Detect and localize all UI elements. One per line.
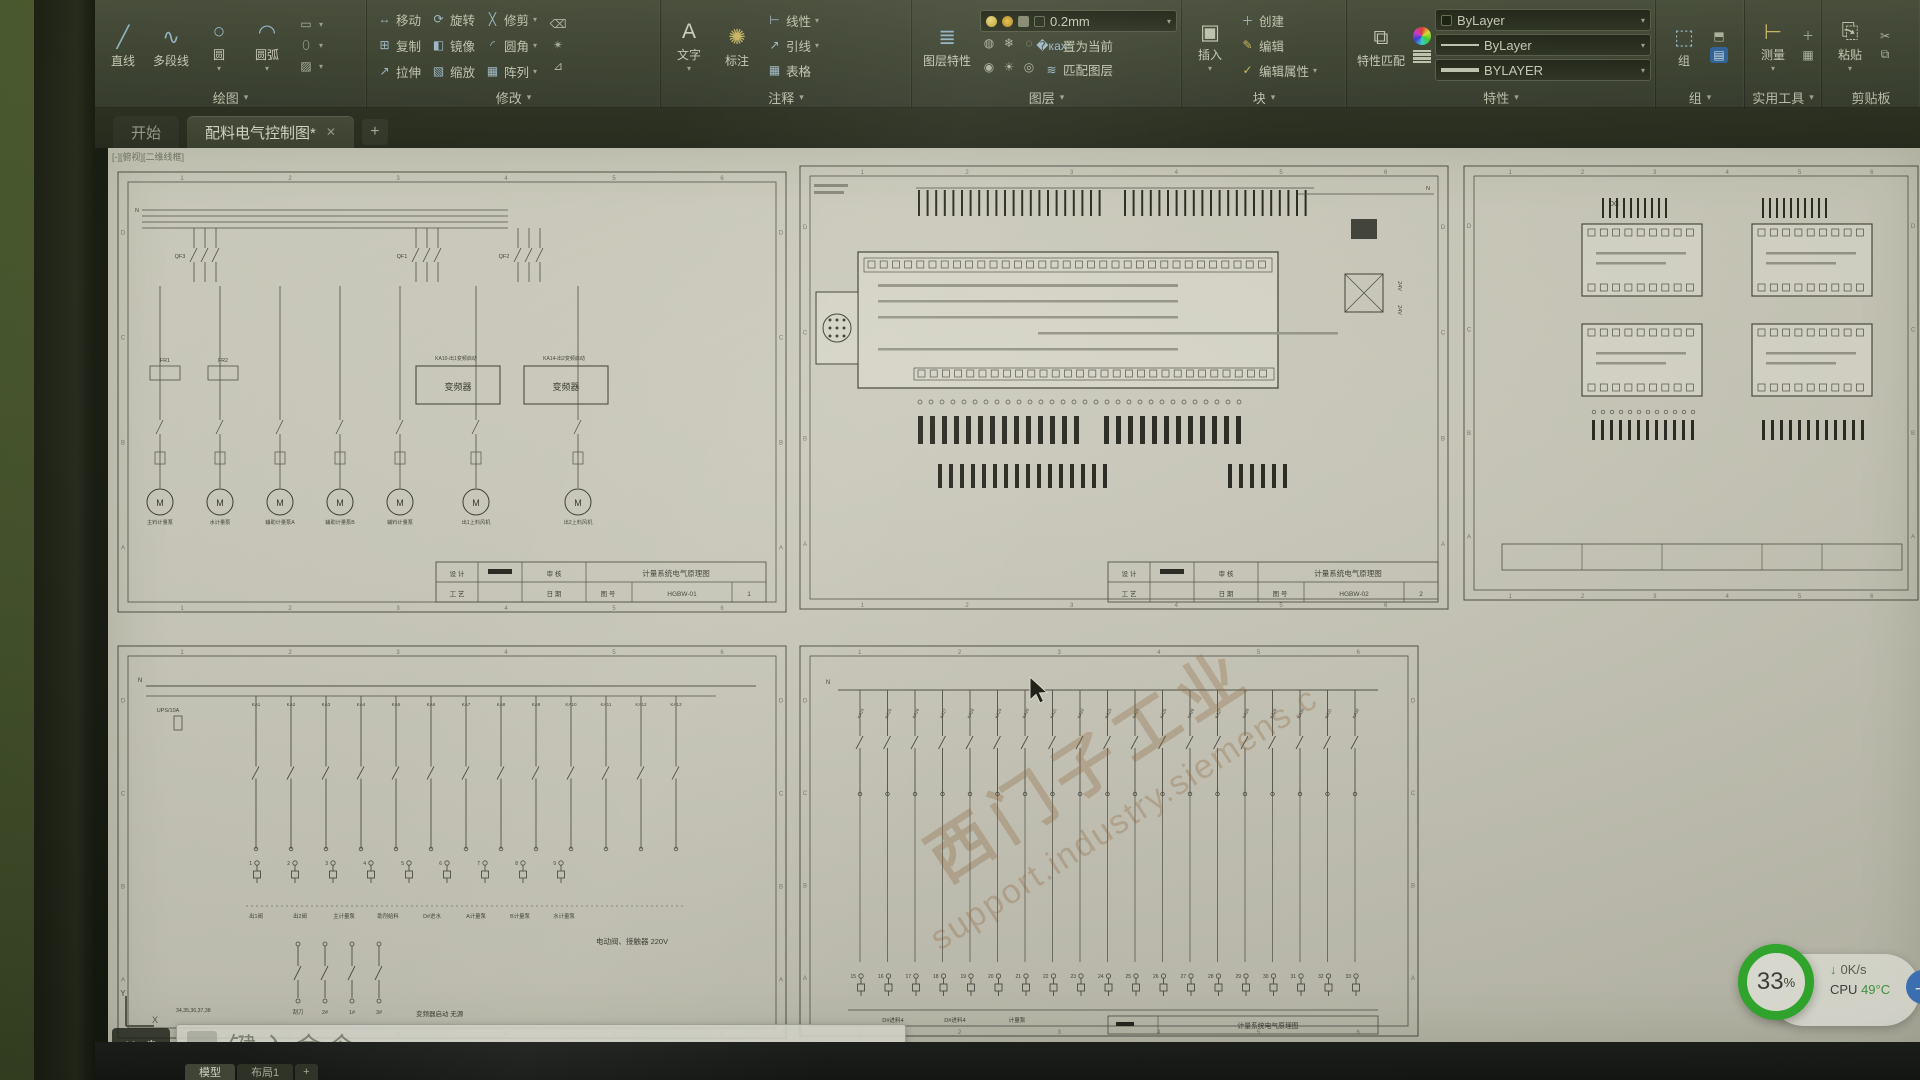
svg-text:KA29: KA29 bbox=[1269, 707, 1278, 719]
dimension-button[interactable]: ✺ 标注 bbox=[715, 21, 759, 70]
sheet-io-modules: 112233445566DDCCBBAADC bbox=[1462, 164, 1920, 602]
layers-icon: ≣ bbox=[932, 23, 962, 53]
svg-text:27: 27 bbox=[1180, 974, 1186, 980]
photo-of-autocad-screen: ╱ 直线 ∿ 多段线 ○ 圆▾ ◠ 圆弧▾ ▭▾ ⬯▾ ▨▾ 绘图 bbox=[0, 0, 1920, 1080]
sheet-relay-control-1: 112233445566DDCCBBAANUPS/10AKA1KA2KA3KA4… bbox=[116, 644, 788, 1040]
linetype-dropdown[interactable]: ByLayer ▾ bbox=[1435, 34, 1651, 56]
svg-text:8: 8 bbox=[515, 861, 518, 867]
svg-text:C: C bbox=[1911, 327, 1916, 333]
memory-percent-ring[interactable]: 33% bbox=[1738, 944, 1814, 1020]
svg-text:B: B bbox=[1441, 436, 1445, 442]
svg-text:设 计: 设 计 bbox=[450, 569, 465, 578]
svg-text:D#进料4: D#进料4 bbox=[882, 1016, 903, 1024]
svg-text:30: 30 bbox=[1263, 974, 1269, 980]
svg-text:KA31: KA31 bbox=[1324, 707, 1333, 719]
modify-panel-label[interactable]: 修改▾ bbox=[367, 86, 660, 108]
svg-text:6: 6 bbox=[720, 606, 724, 612]
svg-text:N: N bbox=[138, 678, 142, 684]
svg-text:B: B bbox=[779, 441, 783, 447]
color-wheel-icon[interactable] bbox=[1413, 27, 1431, 45]
svg-text:29: 29 bbox=[1235, 974, 1241, 980]
layer-dropdown[interactable]: 0.2mm ▾ bbox=[980, 10, 1177, 32]
svg-text:X: X bbox=[152, 1015, 158, 1025]
chevron-down-icon: ▾ bbox=[1641, 16, 1645, 25]
layer-thaw-all-icon[interactable]: ☀ bbox=[1000, 59, 1018, 75]
svg-text:7: 7 bbox=[477, 861, 480, 867]
fillet-button[interactable]: ◜圆角▾ bbox=[481, 35, 541, 56]
svg-text:C: C bbox=[803, 331, 808, 337]
sheet-plc-wiring: 112233445566DDCCBBAAN24V24V设 计工 艺审 核日 期计… bbox=[798, 164, 1450, 611]
svg-text:辅助计量泵A: 辅助计量泵A bbox=[265, 518, 295, 526]
explode-icon: ✴ bbox=[549, 37, 567, 53]
svg-text:B计量泵: B计量泵 bbox=[510, 912, 530, 920]
svg-text:主料计量泵: 主料计量泵 bbox=[147, 518, 173, 526]
move-icon: ↔ bbox=[377, 12, 392, 27]
svg-text:变频器启动 无源: 变频器启动 无源 bbox=[416, 1009, 464, 1018]
svg-text:4: 4 bbox=[504, 176, 508, 182]
circle-icon: ○ bbox=[204, 17, 234, 47]
svg-text:KA2: KA2 bbox=[287, 702, 296, 707]
edit-block-icon: ✎ bbox=[1240, 38, 1255, 53]
hatch-icon: ▨ bbox=[297, 58, 315, 74]
svg-text:1#: 1# bbox=[349, 1010, 355, 1016]
svg-text:主计量泵: 主计量泵 bbox=[333, 912, 355, 920]
svg-text:D: D bbox=[779, 699, 784, 705]
block-panel-label[interactable]: 块▾ bbox=[1182, 86, 1346, 108]
svg-text:刮刀: 刮刀 bbox=[293, 1008, 304, 1016]
fillet-icon: ◜ bbox=[485, 38, 500, 53]
trim-button[interactable]: ╳修剪▾ bbox=[481, 9, 541, 30]
svg-text:A: A bbox=[121, 978, 125, 984]
svg-text:B: B bbox=[1911, 431, 1915, 437]
tab-start[interactable]: 开始 bbox=[113, 116, 179, 148]
svg-text:2: 2 bbox=[965, 170, 969, 176]
svg-text:变频器: 变频器 bbox=[552, 381, 579, 392]
arc-button[interactable]: ◠ 圆弧▾ bbox=[245, 15, 289, 75]
ribbon-panel-draw: ╱ 直线 ∿ 多段线 ○ 圆▾ ◠ 圆弧▾ ▭▾ ⬯▾ ▨▾ 绘图 bbox=[95, 0, 367, 108]
layers-panel-label[interactable]: 图层▾ bbox=[912, 86, 1181, 108]
lineweight-dropdown[interactable]: BYLAYER ▾ bbox=[1435, 59, 1651, 81]
cut-icon[interactable]: ✂ bbox=[1876, 28, 1894, 44]
chevron-down-icon: ▾ bbox=[1167, 17, 1171, 26]
svg-text:KA1: KA1 bbox=[252, 702, 261, 707]
svg-text:5: 5 bbox=[612, 606, 616, 612]
ribbon-panel-layers: ≣ 图层特性 0.2mm ▾ ◍ ❄ ◌ �ка bbox=[912, 0, 1182, 108]
match-properties-icon: ⧉ bbox=[1366, 23, 1396, 53]
linear-dimension-icon: ⊢ bbox=[767, 13, 782, 28]
svg-text:A: A bbox=[1467, 534, 1471, 540]
svg-text:辅料计量泵: 辅料计量泵 bbox=[387, 518, 413, 526]
svg-text:KA21: KA21 bbox=[1049, 707, 1058, 719]
svg-text:HGBW-01: HGBW-01 bbox=[667, 591, 697, 598]
svg-text:C: C bbox=[121, 792, 126, 798]
svg-text:HGBW-02: HGBW-02 bbox=[1339, 591, 1369, 598]
group-edit-icon[interactable]: ▤ bbox=[1710, 47, 1728, 63]
svg-text:A: A bbox=[803, 542, 807, 548]
svg-text:M: M bbox=[156, 498, 164, 508]
svg-text:D: D bbox=[1467, 224, 1472, 230]
svg-text:5: 5 bbox=[1798, 170, 1802, 176]
svg-text:24V: 24V bbox=[1396, 305, 1402, 315]
svg-text:25: 25 bbox=[1125, 974, 1131, 980]
svg-text:D: D bbox=[779, 231, 784, 237]
edit-attributes-icon: ✓ bbox=[1240, 63, 1255, 78]
svg-text:5: 5 bbox=[1257, 650, 1261, 656]
edit-attributes-button[interactable]: ✓编辑属性▾ bbox=[1236, 60, 1321, 81]
copy-button[interactable]: ⊞复制 bbox=[373, 35, 425, 56]
ribbon: ╱ 直线 ∿ 多段线 ○ 圆▾ ◠ 圆弧▾ ▭▾ ⬯▾ ▨▾ 绘图 bbox=[95, 0, 1920, 108]
viewport-controls[interactable]: [-][俯视][二维线框] bbox=[112, 150, 184, 163]
rotate-icon: ⟳ bbox=[431, 12, 446, 27]
svg-text:18: 18 bbox=[933, 974, 939, 980]
tab-drawing-active[interactable]: 配料电气控制图* ✕ bbox=[187, 116, 354, 148]
ungroup-icon[interactable]: ⬒ bbox=[1710, 28, 1728, 44]
svg-text:设 计: 设 计 bbox=[1122, 569, 1137, 578]
svg-text:B: B bbox=[1467, 431, 1471, 437]
create-block-icon: ＋ bbox=[1240, 13, 1255, 28]
linear-dimension-button[interactable]: ⊢线性▾ bbox=[763, 10, 823, 31]
linetype-sample bbox=[1441, 44, 1479, 46]
svg-text:助剂给料: 助剂给料 bbox=[377, 912, 399, 920]
quick-calc-icon[interactable]: ▦ bbox=[1799, 47, 1817, 63]
svg-text:C: C bbox=[803, 791, 808, 797]
ribbon-panel-utilities: ⊢ 测量▾ ＋ ▦ 实用工具▾ bbox=[1745, 0, 1822, 108]
svg-text:KA32: KA32 bbox=[1351, 707, 1360, 719]
svg-text:出1上料风机: 出1上料风机 bbox=[462, 518, 492, 526]
svg-text:KA22: KA22 bbox=[1076, 707, 1085, 719]
sheet-power-circuit: 112233445566DDCCBBAANQF3QF1QF2FR1FR2KA10… bbox=[116, 170, 788, 614]
svg-text:3: 3 bbox=[396, 650, 400, 656]
layout-tab-add[interactable]: + bbox=[295, 1064, 317, 1080]
svg-text:M: M bbox=[336, 498, 344, 508]
svg-text:4: 4 bbox=[504, 650, 508, 656]
svg-text:C: C bbox=[121, 336, 126, 342]
utilities-panel-label[interactable]: 实用工具▾ bbox=[1745, 86, 1821, 108]
svg-text:计量系统电气原理图: 计量系统电气原理图 bbox=[642, 568, 710, 578]
svg-text:3: 3 bbox=[396, 606, 400, 612]
svg-text:KA30: KA30 bbox=[1296, 707, 1305, 719]
measure-icon: ⊢ bbox=[1758, 17, 1788, 47]
svg-text:1: 1 bbox=[180, 650, 184, 656]
layer-on-icon bbox=[986, 16, 997, 27]
ribbon-panel-block: ▣ 插入▾ ＋创建 ✎编辑 ✓编辑属性▾ 块▾ bbox=[1182, 0, 1347, 108]
svg-text:B: B bbox=[121, 885, 125, 891]
svg-text:KA24: KA24 bbox=[1131, 707, 1140, 719]
svg-text:KA20: KA20 bbox=[1021, 707, 1030, 719]
svg-text:C: C bbox=[1467, 327, 1472, 333]
svg-text:24: 24 bbox=[1098, 974, 1104, 980]
svg-text:4: 4 bbox=[1725, 170, 1729, 176]
rectangle-icon: ▭ bbox=[297, 16, 315, 32]
svg-text:D: D bbox=[1411, 698, 1416, 704]
arc-icon: ◠ bbox=[252, 17, 282, 47]
ellipse-tool-button[interactable]: ⬯▾ bbox=[293, 36, 327, 54]
svg-text:1: 1 bbox=[249, 861, 252, 867]
line-icon: ╱ bbox=[108, 23, 138, 53]
svg-text:计量系统电气原理图: 计量系统电气原理图 bbox=[1237, 1021, 1298, 1030]
svg-text:34,35,36,37,38: 34,35,36,37,38 bbox=[176, 1008, 211, 1014]
text-button[interactable]: A 文字▾ bbox=[667, 15, 711, 75]
polyline-icon: ∿ bbox=[156, 23, 186, 53]
system-monitor-widget[interactable]: ↓0K/s CPU 49°C 33% ＋ bbox=[1738, 944, 1920, 1036]
lineweight-list-icon[interactable] bbox=[1413, 50, 1431, 64]
stretch-button[interactable]: ↗拉伸 bbox=[373, 61, 425, 82]
svg-text:C: C bbox=[779, 336, 784, 342]
svg-text:变频器: 变频器 bbox=[444, 381, 471, 392]
group-panel-label[interactable]: 组▾ bbox=[1656, 86, 1744, 108]
svg-text:D: D bbox=[803, 698, 808, 704]
svg-text:3#: 3# bbox=[376, 1010, 382, 1016]
svg-text:Y: Y bbox=[120, 990, 126, 998]
svg-text:21: 21 bbox=[1015, 974, 1021, 980]
svg-text:水计量泵: 水计量泵 bbox=[210, 518, 231, 526]
svg-text:1: 1 bbox=[861, 170, 865, 176]
monitor-bezel bbox=[34, 0, 95, 1080]
svg-text:6: 6 bbox=[720, 650, 724, 656]
svg-text:B: B bbox=[779, 885, 783, 891]
svg-text:2: 2 bbox=[1581, 170, 1585, 176]
table-icon: ▦ bbox=[767, 63, 782, 78]
svg-text:22: 22 bbox=[1043, 974, 1049, 980]
svg-text:A: A bbox=[779, 546, 783, 552]
file-tab-bar: 开始 配料电气控制图* ✕ + bbox=[95, 108, 1920, 148]
svg-text:31: 31 bbox=[1290, 974, 1296, 980]
svg-text:6: 6 bbox=[1870, 170, 1874, 176]
svg-text:2#: 2# bbox=[322, 1010, 328, 1016]
svg-text:B: B bbox=[121, 441, 125, 447]
svg-text:KA18: KA18 bbox=[966, 707, 975, 719]
svg-text:4: 4 bbox=[1175, 170, 1179, 176]
explode-button[interactable]: ✴ bbox=[545, 36, 571, 54]
svg-text:1: 1 bbox=[861, 603, 865, 609]
svg-text:N: N bbox=[826, 680, 830, 686]
svg-text:审 核: 审 核 bbox=[547, 569, 562, 578]
svg-text:A: A bbox=[1441, 542, 1445, 548]
layout-tab-bar: 模型 布局1 + bbox=[185, 1064, 318, 1080]
offset-button[interactable]: ⊿ bbox=[545, 57, 571, 75]
svg-text:28: 28 bbox=[1208, 974, 1214, 980]
svg-text:KA14: KA14 bbox=[856, 707, 865, 719]
layer-color-swatch bbox=[1034, 16, 1045, 27]
scale-icon: ▧ bbox=[431, 64, 446, 79]
svg-text:4: 4 bbox=[363, 861, 366, 867]
svg-text:日 期: 日 期 bbox=[547, 590, 562, 598]
svg-text:KA12: KA12 bbox=[635, 702, 647, 707]
array-button[interactable]: ▦阵列▾ bbox=[481, 61, 541, 82]
group-icon: ⬚ bbox=[1669, 23, 1699, 53]
svg-text:33: 33 bbox=[1345, 974, 1351, 980]
drawing-canvas[interactable]: [-][俯视][二维线框] 112233445566DDCCBBAANQF3QF… bbox=[108, 148, 1920, 1042]
match-layer-button[interactable]: ≋匹配图层 bbox=[1040, 59, 1117, 80]
layout-tab-layout1[interactable]: 布局1 bbox=[237, 1064, 293, 1080]
copy-clip-icon[interactable]: ⧉ bbox=[1876, 47, 1894, 63]
sheet-relay-control-2: 112233445566DDCCBBAANKA14KA15KA16KA17KA1… bbox=[798, 644, 1420, 1038]
svg-text:5: 5 bbox=[612, 650, 616, 656]
ribbon-panel-group: ⬚ 组 ⬒ ▤ 组▾ bbox=[1656, 0, 1745, 108]
svg-text:24V: 24V bbox=[1396, 281, 1402, 291]
svg-text:M: M bbox=[396, 498, 404, 508]
svg-text:KA6: KA6 bbox=[427, 702, 436, 707]
close-icon[interactable]: ✕ bbox=[326, 125, 336, 139]
layout-tab-model[interactable]: 模型 bbox=[185, 1064, 235, 1080]
hatch-tool-button[interactable]: ▨▾ bbox=[293, 57, 327, 75]
svg-text:2: 2 bbox=[288, 176, 292, 182]
svg-text:C: C bbox=[1411, 791, 1416, 797]
svg-text:辅助计量泵B: 辅助计量泵B bbox=[325, 518, 355, 526]
svg-text:16: 16 bbox=[878, 974, 884, 980]
ellipse-icon: ⬯ bbox=[297, 37, 315, 53]
svg-text:日 期: 日 期 bbox=[1219, 590, 1234, 598]
svg-text:KA25: KA25 bbox=[1159, 707, 1168, 719]
polyline-button[interactable]: ∿ 多段线 bbox=[149, 21, 193, 70]
svg-text:9: 9 bbox=[553, 861, 556, 867]
svg-text:1: 1 bbox=[1508, 594, 1512, 600]
svg-text:6: 6 bbox=[1356, 1030, 1360, 1036]
svg-text:N: N bbox=[135, 208, 139, 214]
stretch-icon: ↗ bbox=[377, 64, 392, 79]
svg-text:KA10: KA10 bbox=[565, 702, 577, 707]
svg-text:计量泵: 计量泵 bbox=[1009, 1016, 1026, 1024]
svg-text:FR1: FR1 bbox=[160, 358, 170, 364]
create-block-button[interactable]: ＋创建 bbox=[1236, 10, 1321, 31]
background-wall bbox=[0, 0, 34, 1080]
svg-text:工 艺: 工 艺 bbox=[1122, 590, 1137, 598]
properties-panel-label[interactable]: 特性▾ bbox=[1347, 86, 1655, 108]
id-point-icon[interactable]: ＋ bbox=[1799, 28, 1817, 44]
layer-freeze-icon[interactable]: ❄ bbox=[1000, 35, 1018, 51]
table-button[interactable]: ▦表格 bbox=[763, 60, 823, 81]
svg-text:15: 15 bbox=[850, 974, 856, 980]
layer-properties-button[interactable]: ≣ 图层特性 bbox=[918, 21, 976, 70]
svg-text:KA28: KA28 bbox=[1241, 707, 1250, 719]
svg-text:KA9: KA9 bbox=[532, 702, 541, 707]
edit-block-button[interactable]: ✎编辑 bbox=[1236, 35, 1321, 56]
mirror-button[interactable]: ◧镜像 bbox=[427, 35, 479, 56]
paste-button[interactable]: ⎘ 粘贴▾ bbox=[1828, 15, 1872, 75]
ribbon-panel-modify: ↔移动 ⟳旋转 ╳修剪▾ ⊞复制 ◧镜像 ◜圆角▾ ↗拉伸 ▧缩放 ▦阵列▾ bbox=[367, 0, 661, 108]
svg-text:6: 6 bbox=[1384, 170, 1388, 176]
svg-text:KA4: KA4 bbox=[357, 702, 366, 707]
svg-text:6: 6 bbox=[439, 861, 442, 867]
ribbon-panel-properties: ⧉ 特性匹配 ByLayer ▾ ByLayer ▾ bbox=[1347, 0, 1656, 108]
annotate-panel-label[interactable]: 注释▾ bbox=[661, 86, 911, 108]
match-layer-icon: ≋ bbox=[1044, 62, 1059, 77]
svg-text:A: A bbox=[121, 546, 125, 552]
svg-text:电动阀、接触器 220V: 电动阀、接触器 220V bbox=[596, 936, 668, 946]
svg-text:D: D bbox=[803, 225, 808, 231]
svg-text:M: M bbox=[276, 498, 284, 508]
svg-text:4: 4 bbox=[1725, 594, 1729, 600]
svg-text:4: 4 bbox=[1157, 650, 1161, 656]
move-button[interactable]: ↔移动 bbox=[373, 9, 425, 30]
svg-text:M: M bbox=[574, 498, 582, 508]
lineweight-sample bbox=[1441, 68, 1479, 72]
svg-text:KA26: KA26 bbox=[1186, 707, 1195, 719]
svg-text:FR2: FR2 bbox=[218, 358, 228, 364]
erase-icon: ⌫ bbox=[549, 16, 567, 32]
svg-text:KA10-出1变频启动: KA10-出1变频启动 bbox=[435, 355, 477, 362]
svg-text:出2阀: 出2阀 bbox=[293, 912, 307, 920]
rotate-button[interactable]: ⟳旋转 bbox=[427, 9, 479, 30]
svg-text:图 号: 图 号 bbox=[1273, 590, 1288, 598]
svg-text:32: 32 bbox=[1318, 974, 1324, 980]
download-arrow-icon: ↓ bbox=[1830, 962, 1837, 977]
svg-text:D: D bbox=[1441, 225, 1446, 231]
svg-text:QF3: QF3 bbox=[175, 254, 186, 260]
layer-unisolate-icon[interactable]: ◉ bbox=[980, 59, 998, 75]
svg-text:4: 4 bbox=[1175, 603, 1179, 609]
line-button[interactable]: ╱ 直线 bbox=[101, 21, 145, 70]
svg-text:出2上料风机: 出2上料风机 bbox=[564, 518, 594, 526]
layer-isolate-icon[interactable]: ◍ bbox=[980, 35, 998, 51]
svg-text:KA19: KA19 bbox=[994, 707, 1003, 719]
svg-text:A: A bbox=[803, 976, 807, 982]
scale-button[interactable]: ▧缩放 bbox=[427, 61, 479, 82]
match-properties-button[interactable]: ⧉ 特性匹配 bbox=[1353, 21, 1409, 70]
draw-panel-label[interactable]: 绘图▾ bbox=[95, 86, 366, 108]
chevron-down-icon: ▾ bbox=[1641, 41, 1645, 50]
svg-text:2: 2 bbox=[287, 861, 290, 867]
group-button[interactable]: ⬚ 组 bbox=[1662, 21, 1706, 70]
svg-text:D: D bbox=[121, 231, 126, 237]
object-color-dropdown[interactable]: ByLayer ▾ bbox=[1435, 9, 1651, 31]
leader-button[interactable]: ↗引线▾ bbox=[763, 35, 823, 56]
svg-text:B: B bbox=[803, 436, 807, 442]
svg-text:A: A bbox=[779, 978, 783, 984]
set-current-layer-button[interactable]: �ках置为当前 bbox=[1040, 35, 1117, 56]
svg-text:1: 1 bbox=[1508, 170, 1512, 176]
svg-text:3: 3 bbox=[1057, 1030, 1061, 1036]
svg-text:2: 2 bbox=[958, 650, 962, 656]
chevron-down-icon: ▾ bbox=[1641, 66, 1645, 75]
layer-unlock-icon[interactable]: ◎ bbox=[1020, 59, 1038, 75]
svg-text:5: 5 bbox=[1798, 594, 1802, 600]
ribbon-panel-clipboard: ⎘ 粘贴▾ ✂ ⧉ 剪贴板 bbox=[1822, 0, 1920, 108]
rectangle-tool-button[interactable]: ▭▾ bbox=[293, 15, 327, 33]
svg-text:23: 23 bbox=[1070, 974, 1076, 980]
svg-text:D#进料4: D#进料4 bbox=[944, 1016, 965, 1024]
svg-text:A: A bbox=[1411, 976, 1415, 982]
svg-text:5: 5 bbox=[1279, 603, 1283, 609]
svg-text:计量系统电气原理图: 计量系统电气原理图 bbox=[1314, 568, 1382, 578]
paste-icon: ⎘ bbox=[1835, 17, 1865, 47]
measure-button[interactable]: ⊢ 测量▾ bbox=[1751, 15, 1795, 75]
svg-text:M: M bbox=[216, 498, 224, 508]
svg-text:KA8: KA8 bbox=[497, 702, 506, 707]
svg-text:KA16: KA16 bbox=[911, 707, 920, 719]
svg-text:A: A bbox=[1911, 534, 1915, 540]
status-strip: 模型 布局1 + 模型 ▦ ▩▾ ∟ ⊙▾ ╲▾ ∠▭▾ ☰ 人 人 人1:1▾… bbox=[95, 1042, 1920, 1080]
svg-text:KA15: KA15 bbox=[884, 707, 893, 719]
erase-button[interactable]: ⌫ bbox=[545, 15, 571, 33]
svg-text:D: D bbox=[1911, 224, 1916, 230]
new-tab-button[interactable]: + bbox=[362, 119, 388, 145]
circle-button[interactable]: ○ 圆▾ bbox=[197, 15, 241, 75]
insert-block-button[interactable]: ▣ 插入▾ bbox=[1188, 15, 1232, 75]
svg-text:M: M bbox=[472, 498, 480, 508]
svg-text:5: 5 bbox=[401, 861, 404, 867]
svg-text:工 艺: 工 艺 bbox=[450, 590, 465, 598]
ribbon-panel-annotate: A 文字▾ ✺ 标注 ⊢线性▾ ↗引线▾ ▦表格 注释▾ bbox=[661, 0, 912, 108]
clipboard-panel-label[interactable]: 剪贴板 bbox=[1822, 86, 1920, 108]
svg-text:26: 26 bbox=[1153, 974, 1159, 980]
svg-text:KA7: KA7 bbox=[462, 702, 471, 707]
svg-text:N: N bbox=[1426, 186, 1430, 192]
svg-text:C: C bbox=[779, 792, 784, 798]
svg-text:出1阀: 出1阀 bbox=[249, 912, 263, 920]
svg-text:A计量泵: A计量泵 bbox=[466, 912, 486, 920]
svg-text:QF2: QF2 bbox=[499, 254, 510, 260]
